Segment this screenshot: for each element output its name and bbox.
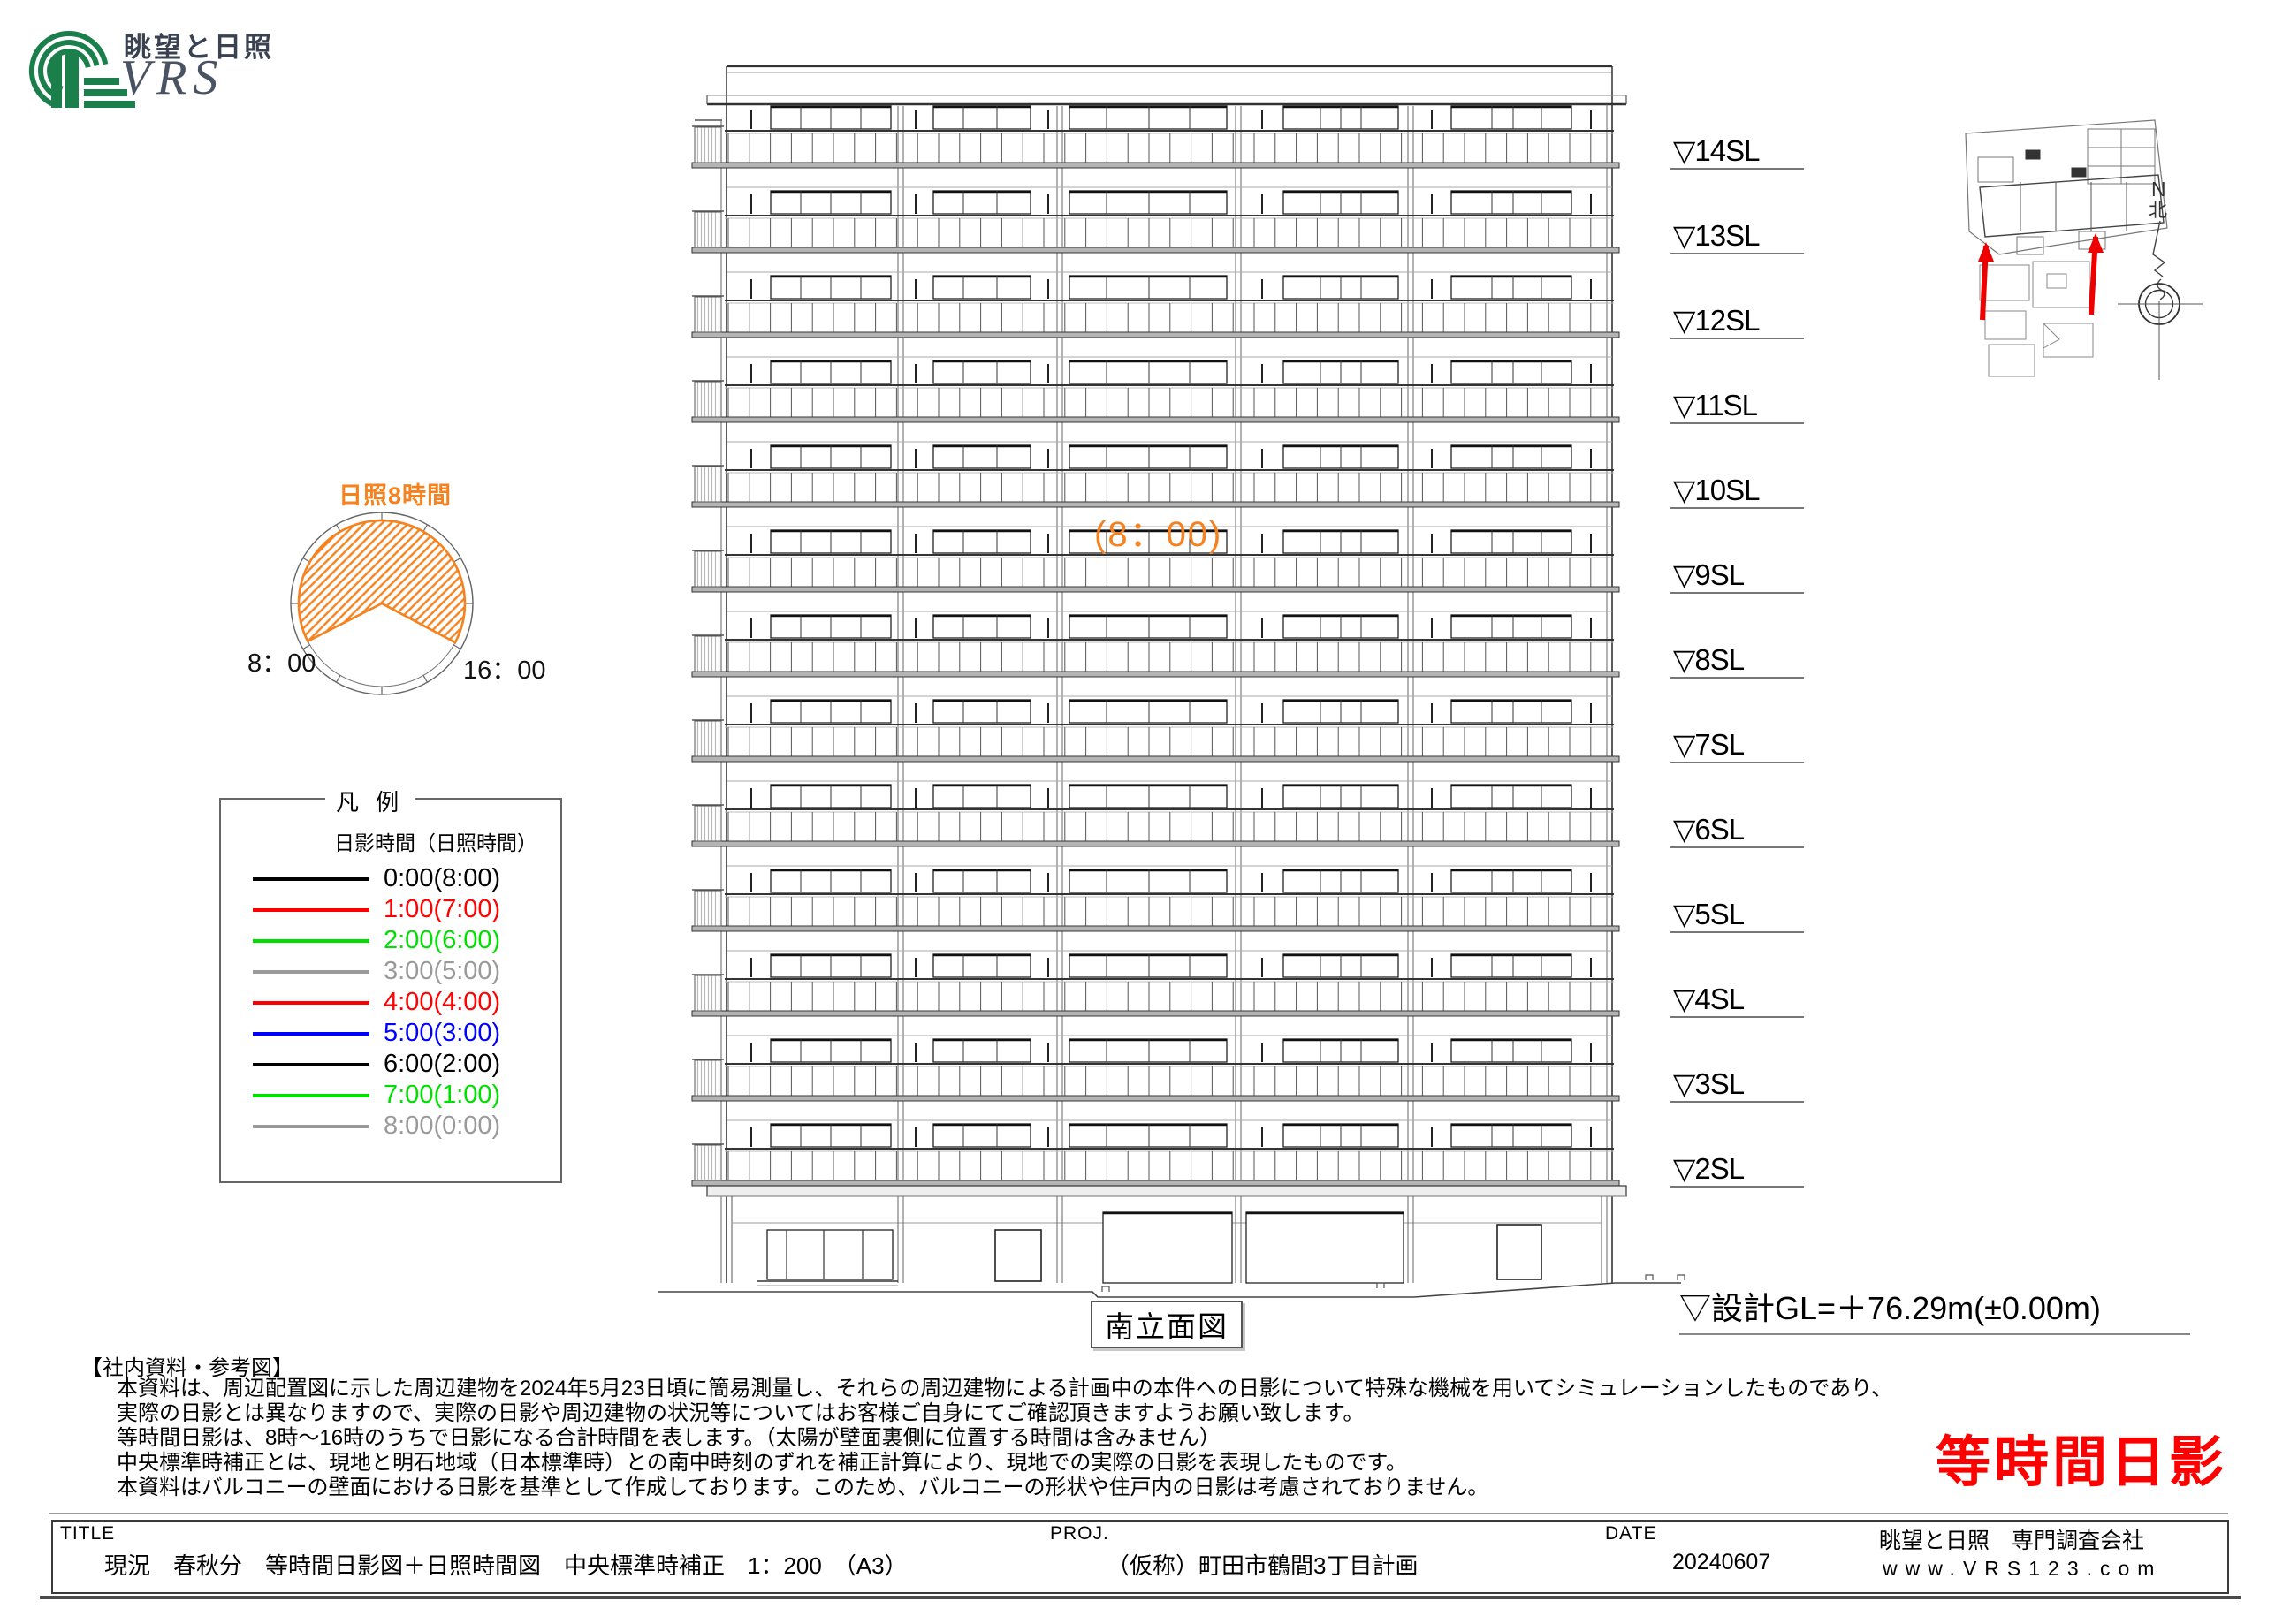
sun-end-time-label: 16：00 xyxy=(463,656,546,685)
elevation-caption: 南立面図 xyxy=(1091,1301,1243,1348)
legend-item: 7:00(1:00) xyxy=(221,1080,560,1111)
legend-item: 5:00(3:00) xyxy=(221,1018,560,1049)
floor-level-label: ▽5SL xyxy=(1670,899,1804,933)
legend-item: 2:00(6:00) xyxy=(221,925,560,956)
floor-level-label: ▽7SL xyxy=(1670,729,1804,763)
north-kanji: 北 xyxy=(2149,201,2167,221)
titleblock-proj-label: PROJ. xyxy=(1050,1523,1109,1544)
sheet-bottom-border xyxy=(40,1596,2241,1599)
titleblock-date-label: DATE xyxy=(1605,1523,1656,1544)
legend-line-swatch xyxy=(253,939,369,943)
titleblock-website: www.VRS123.com xyxy=(1883,1557,2162,1581)
floor-level-label: ▽14SL xyxy=(1670,135,1804,170)
legend-line-swatch xyxy=(253,1032,369,1036)
legend-item-label: 5:00(3:00) xyxy=(384,1019,500,1048)
legend-line-swatch xyxy=(253,908,369,912)
sun-start-time-label: 8：00 xyxy=(247,649,316,678)
legend-item-label: 7:00(1:00) xyxy=(384,1081,500,1110)
note-line: 等時間日影は、8時～16時のうちで日影になる合計時間を表します。（太陽が壁面裏側… xyxy=(117,1426,1892,1451)
legend-line-swatch xyxy=(253,1094,369,1097)
titleblock-company: 眺望と日照 専門調査会社 xyxy=(1879,1523,2144,1555)
legend-line-swatch xyxy=(253,1001,369,1005)
sunshine-sector xyxy=(299,520,465,642)
legend-item-label: 0:00(8:00) xyxy=(384,864,500,893)
legend-title: 凡 例 xyxy=(325,785,415,817)
note-line: 実際の日影とは異なりますので、実際の日影や周辺建物の状況等についてはお客様ご自身… xyxy=(117,1401,1892,1426)
notes-lines: 本資料は、周辺配置図に示した周辺建物を2024年5月23日頃に簡易測量し、それら… xyxy=(117,1377,1892,1500)
legend-header: 日影時間（日照時間） xyxy=(334,826,560,856)
floor-level-label: ▽10SL xyxy=(1670,474,1804,509)
note-line: 中央標準時補正とは、現地と明石地域（日本標準時）との南中時刻のずれを補正計算によ… xyxy=(117,1451,1892,1476)
sun-clock-diagram: 日照8時間 8：00 16：00 xyxy=(247,482,546,694)
building-elevation-drawing xyxy=(658,66,1685,1297)
titleblock-proj-value: （仮称）町田市鶴間3丁目計画 xyxy=(1107,1548,1418,1581)
legend-item: 6:00(2:00) xyxy=(221,1049,560,1080)
floor-level-label: ▽9SL xyxy=(1670,559,1804,594)
brand-name-en: VRS xyxy=(120,49,224,106)
floor-level-label: ▽3SL xyxy=(1670,1068,1804,1103)
note-line: 本資料は、周辺配置図に示した周辺建物を2024年5月23日頃に簡易測量し、それら… xyxy=(117,1377,1892,1401)
isochrone-shadow-stamp: 等時間日影 xyxy=(1936,1417,2227,1497)
legend-item-label: 6:00(2:00) xyxy=(384,1050,500,1079)
legend-item: 4:00(4:00) xyxy=(221,987,560,1018)
legend-item-label: 4:00(4:00) xyxy=(384,988,500,1017)
north-letter: N xyxy=(2151,178,2166,201)
legend-line-swatch xyxy=(253,877,369,881)
sun-time-annotation: (8：00) xyxy=(1094,515,1222,554)
legend-item: 0:00(8:00) xyxy=(221,863,560,894)
drawing-sheet: 日照8時間 8：00 16：00 (8：00) N 北 眺望と日照 VRS 凡 … xyxy=(0,0,2275,1624)
titleblock-title-label: TITLE xyxy=(60,1523,115,1544)
titleblock-date-value: 20240607 xyxy=(1672,1550,1770,1575)
legend-item-label: 3:00(5:00) xyxy=(384,957,500,986)
north-indicator: N 北 xyxy=(2118,178,2203,380)
legend-box: 凡 例 日影時間（日照時間） 0:00(8:00)1:00(7:00)2:00(… xyxy=(219,798,562,1183)
floor-level-label: ▽12SL xyxy=(1670,305,1804,339)
note-line: 本資料はバルコニーの壁面における日影を基準として作成しております。このため、バル… xyxy=(117,1476,1892,1500)
legend-rows: 0:00(8:00)1:00(7:00)2:00(6:00)3:00(5:00)… xyxy=(221,863,560,1142)
floor-level-label: ▽8SL xyxy=(1670,644,1804,679)
design-gl-label: ▽設計GL=＋76.29m(±0.00m) xyxy=(1679,1283,2190,1335)
floor-level-label: ▽2SL xyxy=(1670,1153,1804,1188)
legend-line-swatch xyxy=(253,1125,369,1128)
floor-level-label: ▽6SL xyxy=(1670,814,1804,848)
legend-item: 8:00(0:00) xyxy=(221,1111,560,1142)
floor-level-label: ▽11SL xyxy=(1670,390,1804,424)
legend-item: 3:00(5:00) xyxy=(221,956,560,987)
floor-level-label: ▽13SL xyxy=(1670,220,1804,254)
site-plan-keymap xyxy=(1966,120,2167,376)
legend-item-label: 8:00(0:00) xyxy=(384,1112,500,1141)
legend-item-label: 1:00(7:00) xyxy=(384,895,500,924)
legend-line-swatch xyxy=(253,970,369,974)
legend-item-label: 2:00(6:00) xyxy=(384,926,500,955)
titleblock-divider xyxy=(49,1513,2228,1514)
titleblock-title-value: 現況 春秋分 等時間日影図＋日照時間図 中央標準時補正 1：200 （A3） xyxy=(104,1548,908,1581)
floor-level-label: ▽4SL xyxy=(1670,983,1804,1018)
legend-line-swatch xyxy=(253,1063,369,1066)
sun-diagram-title: 日照8時間 xyxy=(339,482,452,509)
legend-item: 1:00(7:00) xyxy=(221,894,560,925)
